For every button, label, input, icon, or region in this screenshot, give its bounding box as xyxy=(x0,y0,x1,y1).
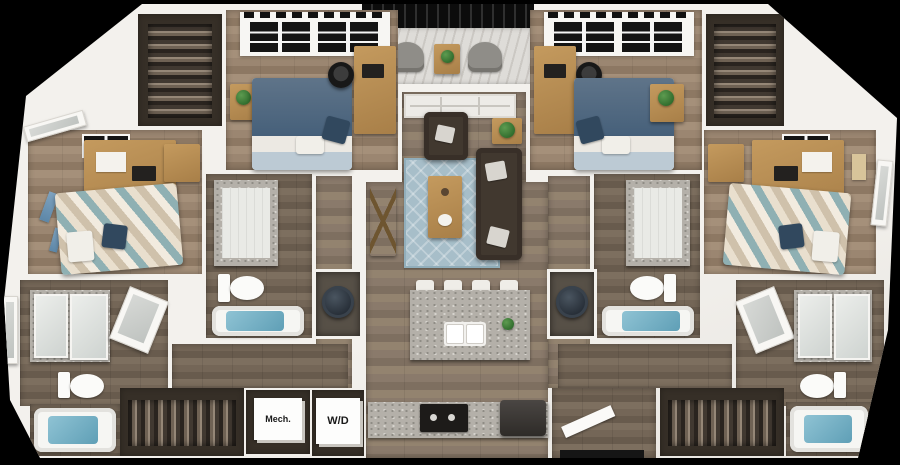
desk xyxy=(534,46,576,134)
mech-room: Mech. xyxy=(246,390,310,454)
shower-floor xyxy=(222,188,270,258)
mech-label-cube: Mech. xyxy=(254,398,302,440)
laptop xyxy=(544,64,566,78)
side-table-plant xyxy=(499,122,515,138)
table-decor xyxy=(438,214,452,226)
throw-blanket xyxy=(574,152,674,170)
water-heater xyxy=(556,286,588,318)
vanity xyxy=(30,290,110,362)
window-glass xyxy=(6,302,14,358)
sink-basin xyxy=(446,324,464,344)
pillow xyxy=(296,136,324,154)
laptop xyxy=(362,64,384,78)
bathtub xyxy=(34,408,116,452)
console-table xyxy=(370,186,396,256)
toilet-tank xyxy=(664,274,676,302)
bedroom-top-left xyxy=(226,10,398,170)
bathtub xyxy=(790,406,868,452)
toilet-bowl xyxy=(800,374,834,398)
bed-chevron xyxy=(55,183,184,275)
window-glass xyxy=(875,166,889,221)
toilet-bowl xyxy=(230,276,264,300)
nightstand-plant xyxy=(236,90,251,105)
window-vent xyxy=(548,12,690,18)
pillow xyxy=(778,223,805,250)
throw-blanket xyxy=(252,152,352,170)
toilet-bowl xyxy=(70,374,104,398)
armchair-pillow xyxy=(435,124,456,143)
door-threshold xyxy=(560,450,644,458)
clothes-rack xyxy=(714,24,776,118)
pillow xyxy=(66,230,95,262)
balcony-chair xyxy=(468,42,502,72)
vanity-mirror xyxy=(34,294,68,358)
bath-bottom-left-tub-area xyxy=(30,404,120,456)
clothes-rack xyxy=(128,400,236,446)
kitchen-sink xyxy=(444,322,486,346)
laptop xyxy=(774,166,798,181)
floor-plan-scene: Mech. W/D xyxy=(0,0,900,465)
stove xyxy=(420,404,468,432)
vanity-mirror xyxy=(70,294,108,360)
laundry-room: W/D xyxy=(312,390,364,456)
bed-chevron xyxy=(723,183,852,275)
wd-label: W/D xyxy=(327,415,348,427)
shower-floor xyxy=(634,188,682,258)
hallway-left-horizontal xyxy=(172,344,348,388)
bedroom-mid-left xyxy=(28,130,202,274)
bathtub xyxy=(602,306,694,336)
vanity-mirror xyxy=(798,294,832,358)
sofa-cushion xyxy=(485,160,508,181)
toilet-tank xyxy=(58,372,70,398)
stove-knob xyxy=(448,414,455,421)
shelf-divider xyxy=(410,105,510,107)
vanity-mirror xyxy=(834,294,870,360)
toilet-tank xyxy=(834,372,846,398)
nightstand xyxy=(708,144,744,182)
sofa-cushion xyxy=(486,226,510,248)
clothes-rack xyxy=(148,24,212,118)
window-vent xyxy=(244,12,386,18)
shower xyxy=(214,180,278,266)
sofa xyxy=(476,148,522,260)
desk xyxy=(354,46,396,134)
island-plant xyxy=(502,318,514,330)
bathroom-mid-right xyxy=(594,174,700,338)
bath-bottom-right-tub-area xyxy=(786,402,874,456)
clothes-rack xyxy=(668,400,776,446)
mech-label: Mech. xyxy=(265,414,291,424)
bath-water xyxy=(622,311,680,331)
toilet-tank xyxy=(218,274,230,302)
toilet-bowl xyxy=(630,276,664,300)
slanted-window xyxy=(109,286,169,354)
slanted-window xyxy=(2,296,18,364)
office-chair xyxy=(328,62,354,88)
closet-bottom-left xyxy=(120,388,244,456)
vanity xyxy=(794,290,872,362)
balcony-plant xyxy=(441,50,454,63)
closet-bottom-right xyxy=(660,388,784,456)
water-heater-closet-right xyxy=(550,272,594,336)
walk-in-closet-top-left xyxy=(138,14,222,126)
sink-basin xyxy=(466,324,484,344)
wall-art xyxy=(852,154,866,180)
pillow xyxy=(602,136,630,154)
desk-papers xyxy=(96,152,126,172)
coffee-table xyxy=(428,176,462,238)
window-glass xyxy=(743,295,785,344)
refrigerator xyxy=(500,400,546,436)
table-decor xyxy=(441,188,449,196)
armchair xyxy=(424,112,468,160)
pillow xyxy=(811,230,840,262)
window-pane xyxy=(620,20,684,54)
bedroom-mid-right xyxy=(704,130,876,274)
bath-water xyxy=(226,311,284,331)
stove-knob xyxy=(430,414,437,421)
bedroom-top-right xyxy=(530,10,702,170)
pillow xyxy=(321,115,350,144)
bath-water xyxy=(48,416,98,444)
window-pane xyxy=(248,20,312,54)
nightstand-plant xyxy=(658,90,674,106)
bath-water xyxy=(804,415,852,443)
kitchen-island xyxy=(410,290,530,360)
water-heater xyxy=(322,286,354,318)
laptop xyxy=(132,166,156,181)
slanted-window xyxy=(735,286,795,354)
desk-papers xyxy=(802,152,832,172)
water-heater-closet-left xyxy=(316,272,360,336)
nightstand xyxy=(164,144,200,182)
window-glass xyxy=(118,294,160,343)
bed-blue xyxy=(252,78,352,170)
walk-in-closet-top-right xyxy=(706,14,784,126)
bathtub xyxy=(212,306,304,336)
wd-label-cube: W/D xyxy=(316,398,360,444)
shelf-divider xyxy=(478,97,480,115)
pillow xyxy=(101,223,128,250)
apartment-floor-plan: Mech. W/D xyxy=(0,0,900,465)
bathroom-mid-left xyxy=(206,174,312,338)
hallway-right-horizontal xyxy=(558,344,732,388)
shower xyxy=(626,180,690,266)
